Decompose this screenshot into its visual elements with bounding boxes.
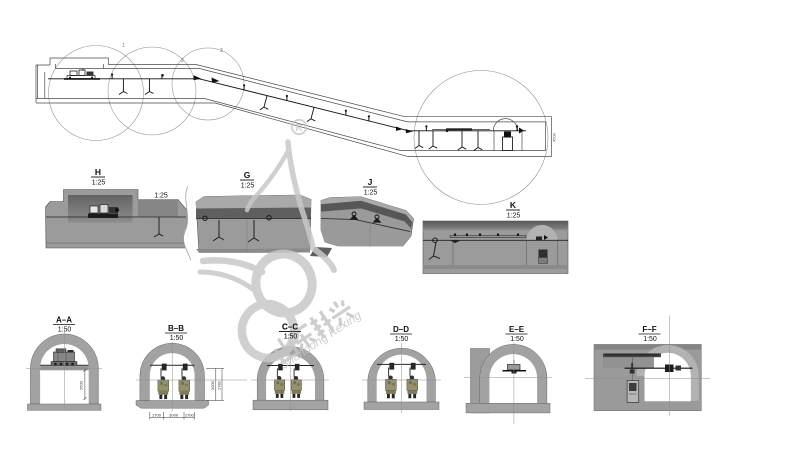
svg-text:2500: 2500	[79, 380, 84, 390]
svg-text:1:25: 1:25	[92, 180, 106, 187]
svg-text:4500: 4500	[552, 132, 557, 142]
svg-text:3: 3	[220, 48, 223, 54]
svg-text:3000: 3000	[169, 412, 179, 417]
svg-text:2: 2	[181, 58, 184, 64]
svg-text:1:50: 1:50	[643, 336, 657, 343]
svg-text:1:25: 1:25	[507, 213, 521, 220]
svg-text:J: J	[368, 177, 373, 187]
svg-text:1:50: 1:50	[510, 336, 524, 343]
svg-text:1:50: 1:50	[395, 336, 409, 343]
svg-text:1700: 1700	[152, 412, 162, 417]
svg-text:3000: 3000	[210, 380, 215, 390]
svg-text:2782: 2782	[217, 380, 222, 390]
svg-text:F–F: F–F	[642, 325, 656, 334]
svg-text:1: 1	[122, 43, 125, 49]
svg-text:E–E: E–E	[509, 325, 525, 334]
svg-text:C–C: C–C	[282, 323, 298, 332]
svg-text:G: G	[244, 170, 251, 180]
svg-text:K: K	[510, 200, 517, 210]
svg-text:1:50: 1:50	[170, 335, 184, 342]
svg-text:D–D: D–D	[393, 325, 409, 334]
svg-text:B–B: B–B	[168, 324, 184, 333]
svg-text:A–A: A–A	[56, 316, 72, 325]
svg-text:1700: 1700	[185, 412, 195, 417]
svg-text:1:50: 1:50	[284, 334, 298, 341]
svg-text:1:25: 1:25	[364, 190, 378, 197]
svg-text:1:25: 1:25	[241, 183, 255, 190]
svg-text:R: R	[295, 123, 303, 134]
svg-text:H: H	[95, 167, 101, 177]
svg-text:1:25: 1:25	[154, 193, 168, 200]
